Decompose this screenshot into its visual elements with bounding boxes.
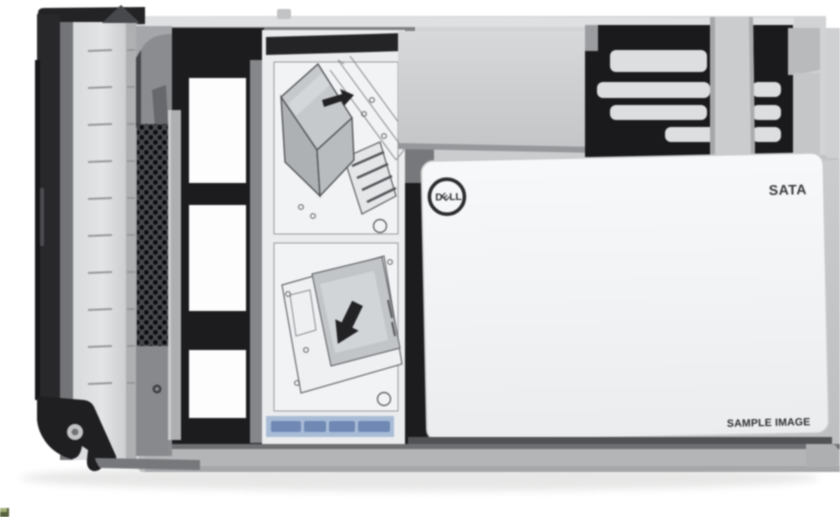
svg-text:LL: LL xyxy=(449,192,461,203)
svg-text:SATA: SATA xyxy=(769,181,807,198)
svg-text:SAMPLE IMAGE: SAMPLE IMAGE xyxy=(727,416,811,430)
